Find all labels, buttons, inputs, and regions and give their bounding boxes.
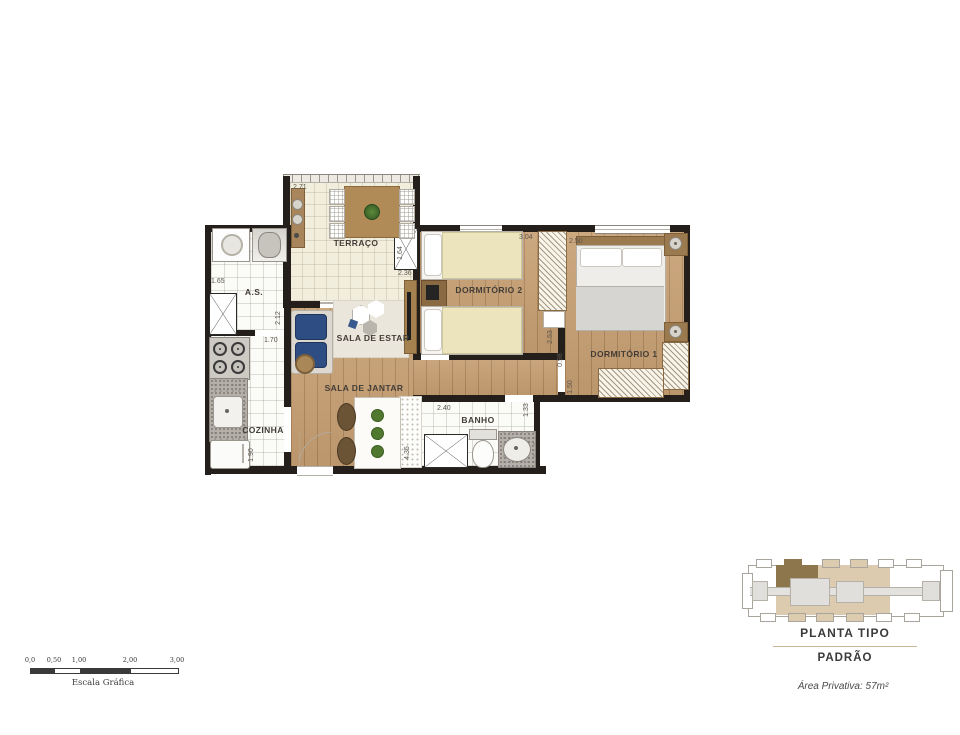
bed-blanket: [442, 232, 522, 279]
keyplan-core: [752, 581, 768, 601]
toilet-bowl: [472, 440, 494, 468]
terrace-railing: [283, 174, 420, 183]
fridge-handle: [242, 444, 244, 463]
keyplan-balcony-tab: [760, 613, 776, 622]
stove-burner: [213, 342, 227, 356]
scale-tick: 1,00: [72, 656, 86, 664]
dim-dorm2-width: 3.04: [519, 234, 533, 241]
dim-as-height: 2.12: [275, 305, 283, 331]
keyplan-balcony-tab: [816, 613, 834, 622]
terrace-chair: [399, 206, 415, 222]
room-label-cozinha: COZINHA: [242, 425, 284, 435]
fridge: [210, 440, 250, 469]
bedroom1-window: [595, 225, 670, 234]
keyplan-balcony-tab: [788, 613, 806, 622]
keyplan-highlight-tab: [784, 559, 802, 566]
faucet-icon: [225, 409, 229, 413]
entry-door-swing: [299, 432, 332, 466]
keyplan-balcony-tab: [876, 613, 892, 622]
bed-blanket: [442, 307, 522, 354]
dim-jantar-height: 4.35: [404, 440, 412, 466]
washer-door: [221, 234, 243, 256]
scale-tick: 0,50: [47, 656, 61, 664]
scale-tick: 2,00: [123, 656, 137, 664]
wardrobe: [662, 342, 689, 390]
toilet-tank: [469, 429, 497, 440]
plan-variant-title: PADRÃO: [818, 652, 873, 664]
wardrobe: [538, 231, 567, 311]
dim-cozinha-height: 1.90: [248, 442, 256, 468]
faucet-icon: [514, 446, 518, 450]
dim-shaft-height: 1.64: [397, 240, 405, 266]
terrace-chair: [399, 189, 415, 205]
keyplan: [742, 552, 952, 624]
dining-chair: [337, 437, 356, 465]
room-label-banho: BANHO: [461, 415, 494, 425]
plan-type-title: PLANTA TIPO: [800, 626, 890, 640]
room-label-terraco: TERRAÇO: [334, 238, 379, 248]
terrace-chair: [329, 189, 345, 205]
wardrobe: [598, 368, 664, 398]
keyplan-balcony-tab: [846, 613, 864, 622]
dim-dorm1-closet: 1.50: [567, 374, 575, 400]
plant-icon: [364, 204, 380, 220]
terrace-pot: [294, 233, 299, 238]
plate: [371, 445, 384, 458]
floor-plan-page: TERRAÇO A.S. SALA DE ESTAR DORMITÓRIO 2 …: [0, 0, 960, 735]
terrace-pot: [292, 199, 303, 210]
keyplan-balcony-tab: [850, 559, 868, 568]
pillow: [424, 234, 442, 276]
room-label-as: A.S.: [245, 287, 263, 297]
stove-burner: [231, 360, 245, 374]
keyplan-core: [836, 581, 864, 603]
scale-bar: [30, 668, 179, 674]
keyplan-endcap: [940, 570, 953, 612]
entry-door-opening: [297, 466, 333, 476]
side-table: [295, 354, 315, 374]
plate: [371, 409, 384, 422]
shower-box: [424, 434, 468, 468]
terrace-chair: [329, 223, 345, 239]
lamp-icon: [669, 325, 682, 338]
legend-divider: [773, 646, 917, 647]
dim-banho-height: 1.33: [523, 397, 531, 423]
laundry-tank-basin: [258, 232, 281, 258]
duct-shaft: [209, 293, 237, 335]
keyplan-core: [922, 581, 940, 601]
room-label-dormitorio2: DORMITÓRIO 2: [455, 285, 522, 295]
dim-as-width: 1.65: [211, 278, 225, 285]
plate: [371, 427, 384, 440]
dining-chair: [337, 403, 356, 431]
pillow: [580, 248, 622, 267]
kitchen-pass-opening: [284, 407, 291, 452]
private-area-label: Área Privativa: 57m²: [798, 681, 889, 692]
dim-dorm2-height: 2.53: [547, 324, 555, 350]
terrace-chair: [399, 223, 415, 239]
terrace-pot: [292, 214, 303, 225]
scale-segment: [80, 669, 131, 673]
scale-tick: 0,0: [25, 656, 35, 664]
pillow: [424, 309, 442, 351]
room-label-sala-jantar: SALA DE JANTAR: [325, 383, 404, 393]
terrace-chair: [329, 206, 345, 222]
stove-burner: [213, 360, 227, 374]
dim-banho-width: 2.40: [437, 405, 451, 412]
scale-segment: [55, 669, 80, 673]
scale-segment: [31, 669, 55, 673]
pillow: [622, 248, 662, 267]
lamp-icon: [669, 237, 682, 250]
dim-dorm1-width: 2.50: [569, 238, 583, 245]
dim-terraco-width: 2.71: [293, 184, 307, 191]
room-label-dormitorio1: DORMITÓRIO 1: [590, 349, 657, 359]
dim-hall-width: 0.98: [557, 347, 565, 373]
scale-segment: [131, 669, 178, 673]
room-label-sala-estar: SALA DE ESTAR: [337, 333, 410, 343]
keyplan-balcony-tab: [756, 559, 772, 568]
scale-caption: Escala Gráfica: [72, 678, 134, 688]
dim-as-door: 1.70: [264, 337, 278, 344]
dim-estar-width: 2.36: [398, 270, 412, 277]
sofa-cushion: [295, 314, 327, 340]
keyplan-core: [790, 578, 830, 606]
nightstand-item: [426, 285, 439, 300]
stove-burner: [231, 342, 245, 356]
keyplan-balcony-tab: [906, 559, 922, 568]
scale-tick: 3,00: [170, 656, 184, 664]
keyplan-balcony-tab: [822, 559, 840, 568]
keyplan-balcony-tab: [904, 613, 920, 622]
keyplan-balcony-tab: [878, 559, 894, 568]
bed-throw: [576, 286, 664, 330]
